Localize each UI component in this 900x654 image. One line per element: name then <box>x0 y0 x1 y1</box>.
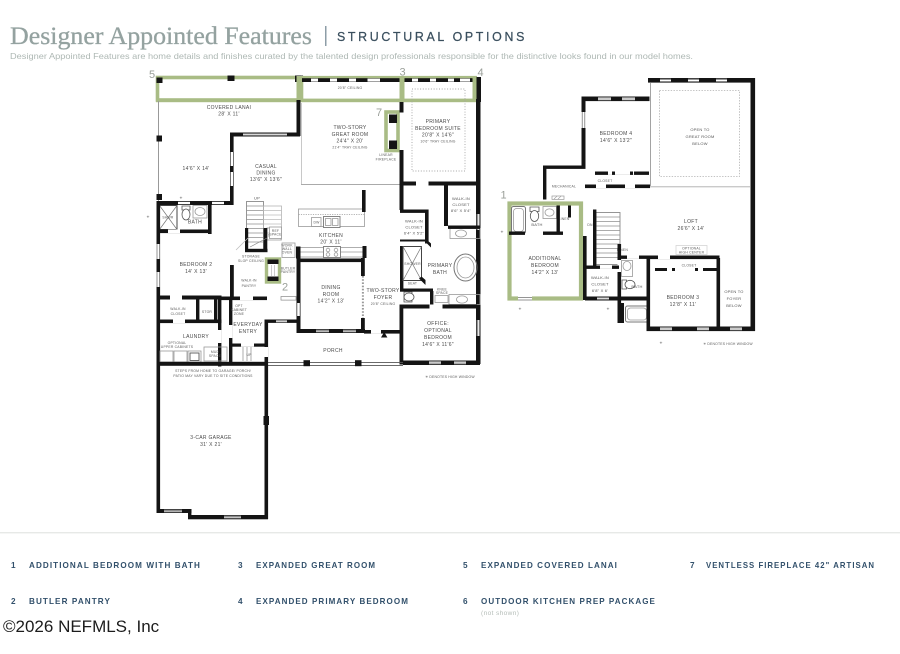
svg-text:EXPANDED PRIMARY BEDROOM: EXPANDED PRIMARY BEDROOM <box>256 597 409 606</box>
svg-text:OUTDOOR KITCHEN PREP PACKAGE: OUTDOOR KITCHEN PREP PACKAGE <box>481 597 656 606</box>
svg-text:(not shown): (not shown) <box>481 610 519 617</box>
svg-text:BEDROOM SUITE: BEDROOM SUITE <box>415 126 461 132</box>
svg-text:UPPER CABINETS: UPPER CABINETS <box>161 345 194 349</box>
svg-text:ADDITIONAL BEDROOM WITH BATH: ADDITIONAL BEDROOM WITH BATH <box>29 561 201 570</box>
svg-text:✳: ✳ <box>146 215 149 219</box>
svg-text:BELOW: BELOW <box>726 303 741 308</box>
svg-text:PRIMARY: PRIMARY <box>426 119 451 125</box>
svg-text:OVEN: OVEN <box>282 251 293 255</box>
svg-text:14'6" X 11'6": 14'6" X 11'6" <box>422 342 454 348</box>
svg-text:14'2" X 13': 14'2" X 13' <box>317 299 344 305</box>
svg-text:PORCH: PORCH <box>323 348 343 354</box>
svg-text:STORAGE: STORAGE <box>242 255 260 259</box>
svg-text:BATH: BATH <box>531 222 542 227</box>
svg-text:2: 2 <box>11 597 17 606</box>
svg-text:UP: UP <box>246 353 252 357</box>
svg-text:TWO-STORY: TWO-STORY <box>366 288 399 294</box>
svg-text:SPACE: SPACE <box>436 291 449 295</box>
svg-text:14' X 13': 14' X 13' <box>185 269 207 275</box>
svg-text:FOYER: FOYER <box>374 295 393 301</box>
svg-text:SPACE: SPACE <box>269 233 282 237</box>
svg-text:BATH: BATH <box>188 220 202 226</box>
svg-text:FOYER: FOYER <box>727 296 742 301</box>
svg-text:CLOSET: CLOSET <box>452 202 470 207</box>
svg-text:BATH: BATH <box>631 284 642 289</box>
svg-text:WALK-IN: WALK-IN <box>241 279 257 283</box>
svg-text:COVERED LANAI: COVERED LANAI <box>207 105 251 111</box>
svg-text:6: 6 <box>463 597 469 606</box>
svg-text:STRUCTURAL OPTIONS: STRUCTURAL OPTIONS <box>337 29 527 44</box>
svg-text:WALK-IN: WALK-IN <box>591 275 609 280</box>
svg-text:PANTRY: PANTRY <box>242 284 257 288</box>
svg-text:3: 3 <box>400 67 406 79</box>
svg-text:WALK-IN: WALK-IN <box>405 219 423 224</box>
svg-text:21'4" TRAY CEILING: 21'4" TRAY CEILING <box>332 146 367 150</box>
svg-text:26'6" X 14': 26'6" X 14' <box>677 226 704 232</box>
svg-text:UP: UP <box>254 196 260 201</box>
svg-text:LINEAR: LINEAR <box>379 153 393 157</box>
svg-text:TWO-STORY: TWO-STORY <box>333 125 366 131</box>
svg-text:OPEN TO: OPEN TO <box>724 289 743 294</box>
svg-text:3-CAR GARAGE: 3-CAR GARAGE <box>190 435 232 441</box>
svg-text:28' X 11': 28' X 11' <box>218 112 239 118</box>
svg-text:EXPANDED GREAT ROOM: EXPANDED GREAT ROOM <box>256 561 376 570</box>
svg-text:1: 1 <box>11 561 17 570</box>
svg-text:SLOP CEILING: SLOP CEILING <box>238 259 264 263</box>
svg-text:LOFT: LOFT <box>684 219 698 225</box>
svg-text:14'2" X 13': 14'2" X 13' <box>531 270 558 276</box>
svg-text:WALK-IN: WALK-IN <box>452 196 470 201</box>
svg-text:DW: DW <box>313 221 320 225</box>
svg-text:EXPANDED COVERED LANAI: EXPANDED COVERED LANAI <box>481 561 618 570</box>
svg-text:ZONE: ZONE <box>234 312 245 316</box>
svg-text:Designer Appointed Features ar: Designer Appointed Features are home det… <box>10 51 693 61</box>
svg-text:✳ DENOTES HIGH WINDOW: ✳ DENOTES HIGH WINDOW <box>425 375 475 379</box>
svg-text:10'6" TRAY CEILING: 10'6" TRAY CEILING <box>420 140 455 144</box>
svg-text:5: 5 <box>149 69 155 81</box>
svg-text:PANTRY: PANTRY <box>281 270 296 274</box>
svg-text:EVERYDAY: EVERYDAY <box>233 322 263 328</box>
svg-text:BEDROOM 3: BEDROOM 3 <box>667 295 700 301</box>
svg-text:20'8" X 14'6": 20'8" X 14'6" <box>422 133 454 139</box>
svg-text:SEAT: SEAT <box>408 282 417 286</box>
svg-text:LINEN: LINEN <box>559 217 570 221</box>
svg-text:20'8" CEILING: 20'8" CEILING <box>371 302 396 306</box>
svg-text:BEDROOM 2: BEDROOM 2 <box>180 262 213 268</box>
svg-text:CLOSET: CLOSET <box>682 264 697 268</box>
svg-text:SHOWER: SHOWER <box>404 262 421 266</box>
svg-text:24'4" X 20': 24'4" X 20' <box>336 139 363 145</box>
svg-text:CLOSET: CLOSET <box>405 225 423 230</box>
svg-text:✳: ✳ <box>659 341 662 345</box>
svg-text:FIREPLACE: FIREPLACE <box>376 158 397 162</box>
svg-text:Designer Appointed Features: Designer Appointed Features <box>10 23 312 50</box>
svg-text:©2026 NEFMLS, Inc: ©2026 NEFMLS, Inc <box>3 617 160 636</box>
svg-text:DN: DN <box>587 223 593 227</box>
svg-text:14'6" X 13'2": 14'6" X 13'2" <box>600 138 632 144</box>
svg-text:5: 5 <box>463 561 469 570</box>
svg-text:LAUNDRY: LAUNDRY <box>183 334 209 340</box>
svg-text:4: 4 <box>478 67 484 79</box>
svg-text:12'8" X 11': 12'8" X 11' <box>670 302 697 308</box>
svg-text:WALK-IN: WALK-IN <box>170 307 186 311</box>
svg-text:BEDROOM: BEDROOM <box>531 263 559 269</box>
svg-text:2: 2 <box>282 282 288 294</box>
svg-text:6'8" X 6': 6'8" X 6' <box>592 288 608 293</box>
svg-text:CLOSET: CLOSET <box>171 312 186 316</box>
svg-text:✳: ✳ <box>518 307 521 311</box>
svg-text:SPACE: SPACE <box>209 354 222 358</box>
svg-text:8'6" X 5'4": 8'6" X 5'4" <box>451 208 472 213</box>
svg-text:HIGH CENTER: HIGH CENTER <box>679 251 705 255</box>
svg-text:PRIMARY: PRIMARY <box>428 263 453 269</box>
svg-text:GREAT ROOM: GREAT ROOM <box>686 134 715 139</box>
svg-text:✳: ✳ <box>500 230 503 234</box>
svg-text:1: 1 <box>501 190 507 202</box>
svg-text:13'6" X 13'6": 13'6" X 13'6" <box>250 177 282 183</box>
svg-text:CLOSET: CLOSET <box>598 179 613 183</box>
svg-text:VENTLESS FIREPLACE 42" ARTISAN: VENTLESS FIREPLACE 42" ARTISAN <box>706 561 875 570</box>
svg-text:DINING: DINING <box>321 285 340 291</box>
svg-text:4: 4 <box>238 597 244 606</box>
svg-text:✳ DENOTES HIGH WINDOW: ✳ DENOTES HIGH WINDOW <box>703 342 753 346</box>
svg-text:BELOW: BELOW <box>692 141 707 146</box>
svg-text:31' X 21': 31' X 21' <box>200 442 222 448</box>
svg-text:✳: ✳ <box>606 307 609 311</box>
svg-text:7: 7 <box>690 561 696 570</box>
svg-text:DINING: DINING <box>256 171 275 177</box>
svg-text:STEPS FROM HOME TO GARAGE/ POR: STEPS FROM HOME TO GARAGE/ PORCH/ <box>175 369 251 373</box>
svg-text:MECHANICAL: MECHANICAL <box>552 185 576 189</box>
svg-text:CASUAL: CASUAL <box>255 164 277 170</box>
svg-text:OFFICE:: OFFICE: <box>427 321 449 327</box>
svg-text:ROOM: ROOM <box>323 292 340 298</box>
svg-text:ADDITIONAL: ADDITIONAL <box>528 256 561 262</box>
svg-text:OPEN TO: OPEN TO <box>690 127 709 132</box>
svg-text:GREAT ROOM: GREAT ROOM <box>332 132 369 138</box>
svg-text:✳: ✳ <box>179 196 182 200</box>
svg-text:PATIO MAY VARY DUE TO SITE CON: PATIO MAY VARY DUE TO SITE CONDITIONS <box>173 374 253 378</box>
svg-text:SHWR: SHWR <box>162 216 174 220</box>
svg-text:OPTIONAL: OPTIONAL <box>424 328 452 334</box>
svg-text:3: 3 <box>238 561 244 570</box>
svg-text:KITCHEN: KITCHEN <box>319 233 343 239</box>
svg-text:6'4" X 5'2": 6'4" X 5'2" <box>404 231 425 236</box>
svg-text:BUTLER PANTRY: BUTLER PANTRY <box>29 597 111 606</box>
svg-text:CLOSET: CLOSET <box>591 282 609 287</box>
svg-text:20' X 11': 20' X 11' <box>320 240 341 246</box>
svg-text:7: 7 <box>376 107 382 119</box>
svg-text:20'8" CEILING: 20'8" CEILING <box>338 86 363 90</box>
svg-text:ENTRY: ENTRY <box>239 329 258 335</box>
svg-text:STOR: STOR <box>202 310 213 314</box>
svg-text:14'6" X 14': 14'6" X 14' <box>182 166 209 172</box>
svg-text:BEDROOM 4: BEDROOM 4 <box>600 131 633 137</box>
svg-text:BEDROOM: BEDROOM <box>424 335 452 341</box>
svg-text:BATH: BATH <box>433 270 447 276</box>
